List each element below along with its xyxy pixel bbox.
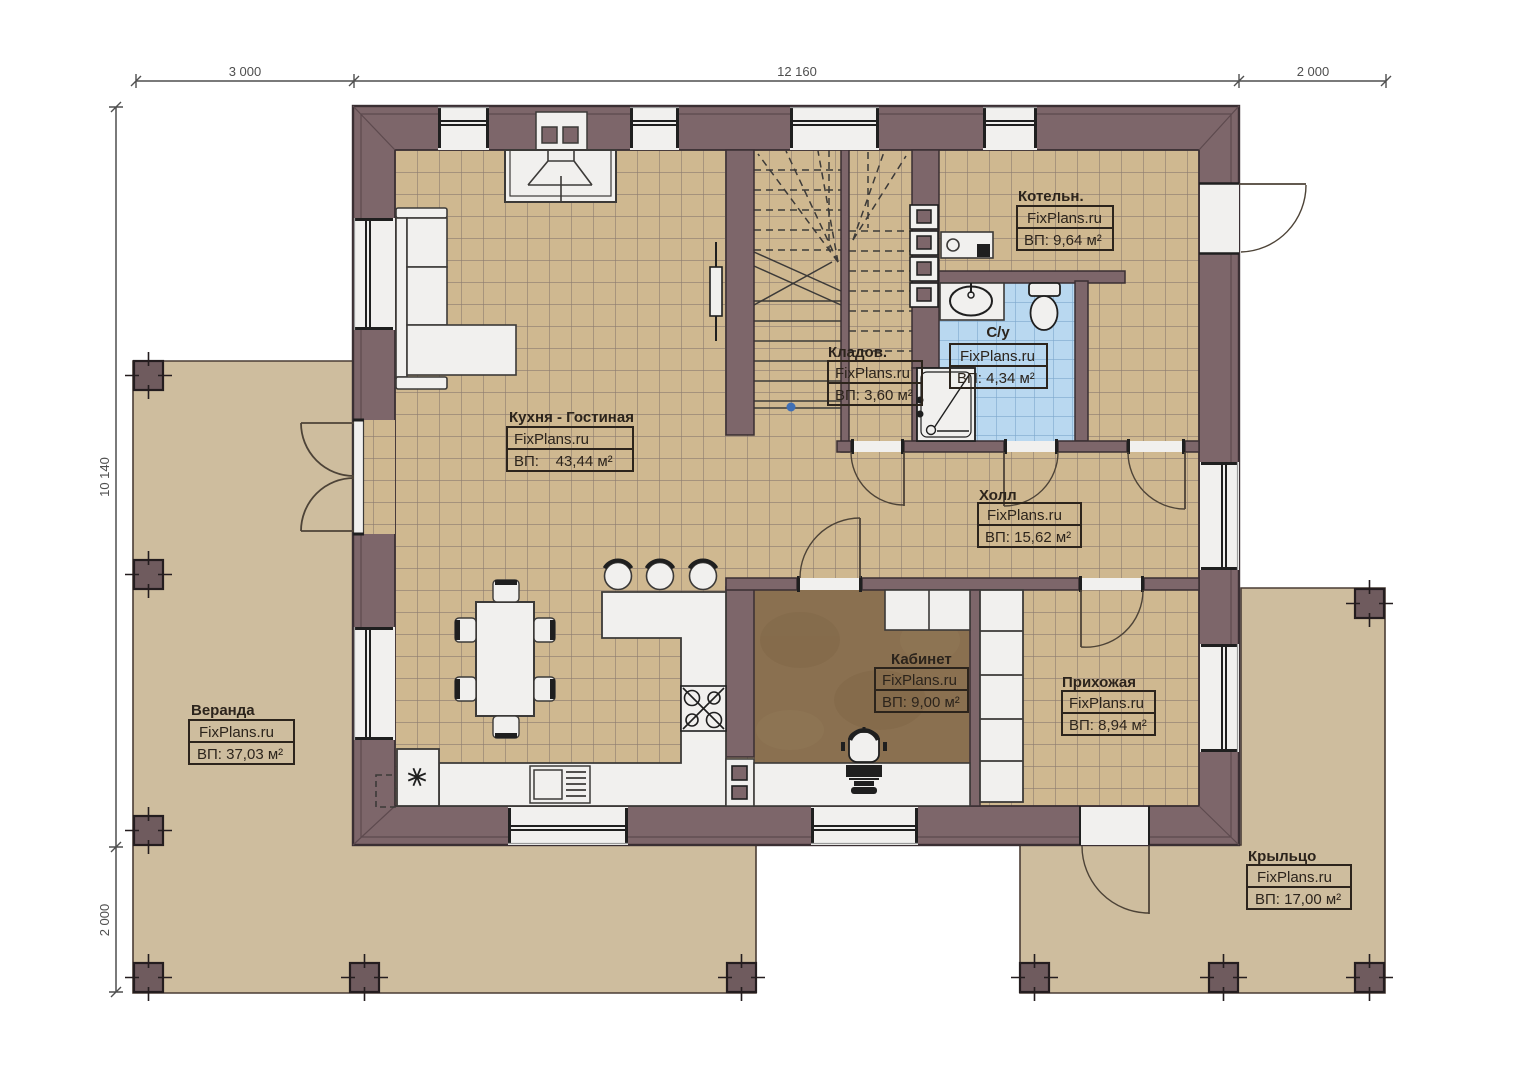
svg-text:ВП: 9,00 м²: ВП: 9,00 м²: [882, 694, 960, 711]
svg-text:С/у: С/у: [986, 324, 1010, 341]
svg-text:3 000: 3 000: [229, 64, 262, 79]
svg-text:ВП: 43,44 м²: ВП: 43,44 м²: [514, 453, 613, 470]
svg-text:Крыльцо: Крыльцо: [1248, 848, 1316, 865]
svg-text:FixPlans.ru: FixPlans.ru: [1027, 210, 1102, 227]
svg-text:FixPlans.ru: FixPlans.ru: [835, 365, 910, 382]
svg-text:ВП: 17,00 м²: ВП: 17,00 м²: [1255, 891, 1341, 908]
svg-text:ВП: 9,64 м²: ВП: 9,64 м²: [1024, 232, 1102, 249]
svg-text:FixPlans.ru: FixPlans.ru: [514, 431, 589, 448]
svg-text:FixPlans.ru: FixPlans.ru: [987, 507, 1062, 524]
svg-text:ВП: 3,60 м²: ВП: 3,60 м²: [835, 387, 913, 404]
svg-text:10 140: 10 140: [97, 457, 112, 497]
svg-text:Котельн.: Котельн.: [1018, 188, 1084, 205]
svg-text:12 160: 12 160: [777, 64, 817, 79]
svg-text:ВП: 37,03 м²: ВП: 37,03 м²: [197, 746, 283, 763]
svg-text:FixPlans.ru: FixPlans.ru: [882, 672, 957, 689]
svg-text:2 000: 2 000: [1297, 64, 1330, 79]
svg-text:FixPlans.ru: FixPlans.ru: [199, 724, 274, 741]
svg-text:ВП: 4,34 м²: ВП: 4,34 м²: [957, 370, 1035, 387]
svg-text:Кабинет: Кабинет: [891, 651, 952, 668]
svg-text:FixPlans.ru: FixPlans.ru: [1257, 869, 1332, 886]
svg-text:FixPlans.ru: FixPlans.ru: [1069, 695, 1144, 712]
svg-text:Кладов.: Кладов.: [828, 344, 887, 361]
svg-text:2 000: 2 000: [97, 904, 112, 937]
svg-text:Прихожая: Прихожая: [1062, 674, 1136, 691]
svg-text:Веранда: Веранда: [191, 702, 255, 719]
svg-text:ВП: 8,94 м²: ВП: 8,94 м²: [1069, 717, 1147, 734]
svg-text:Холл: Холл: [979, 487, 1017, 504]
svg-text:ВП: 15,62 м²: ВП: 15,62 м²: [985, 529, 1071, 546]
svg-text:Кухня - Гостиная: Кухня - Гостиная: [509, 409, 634, 426]
svg-text:FixPlans.ru: FixPlans.ru: [960, 348, 1035, 365]
